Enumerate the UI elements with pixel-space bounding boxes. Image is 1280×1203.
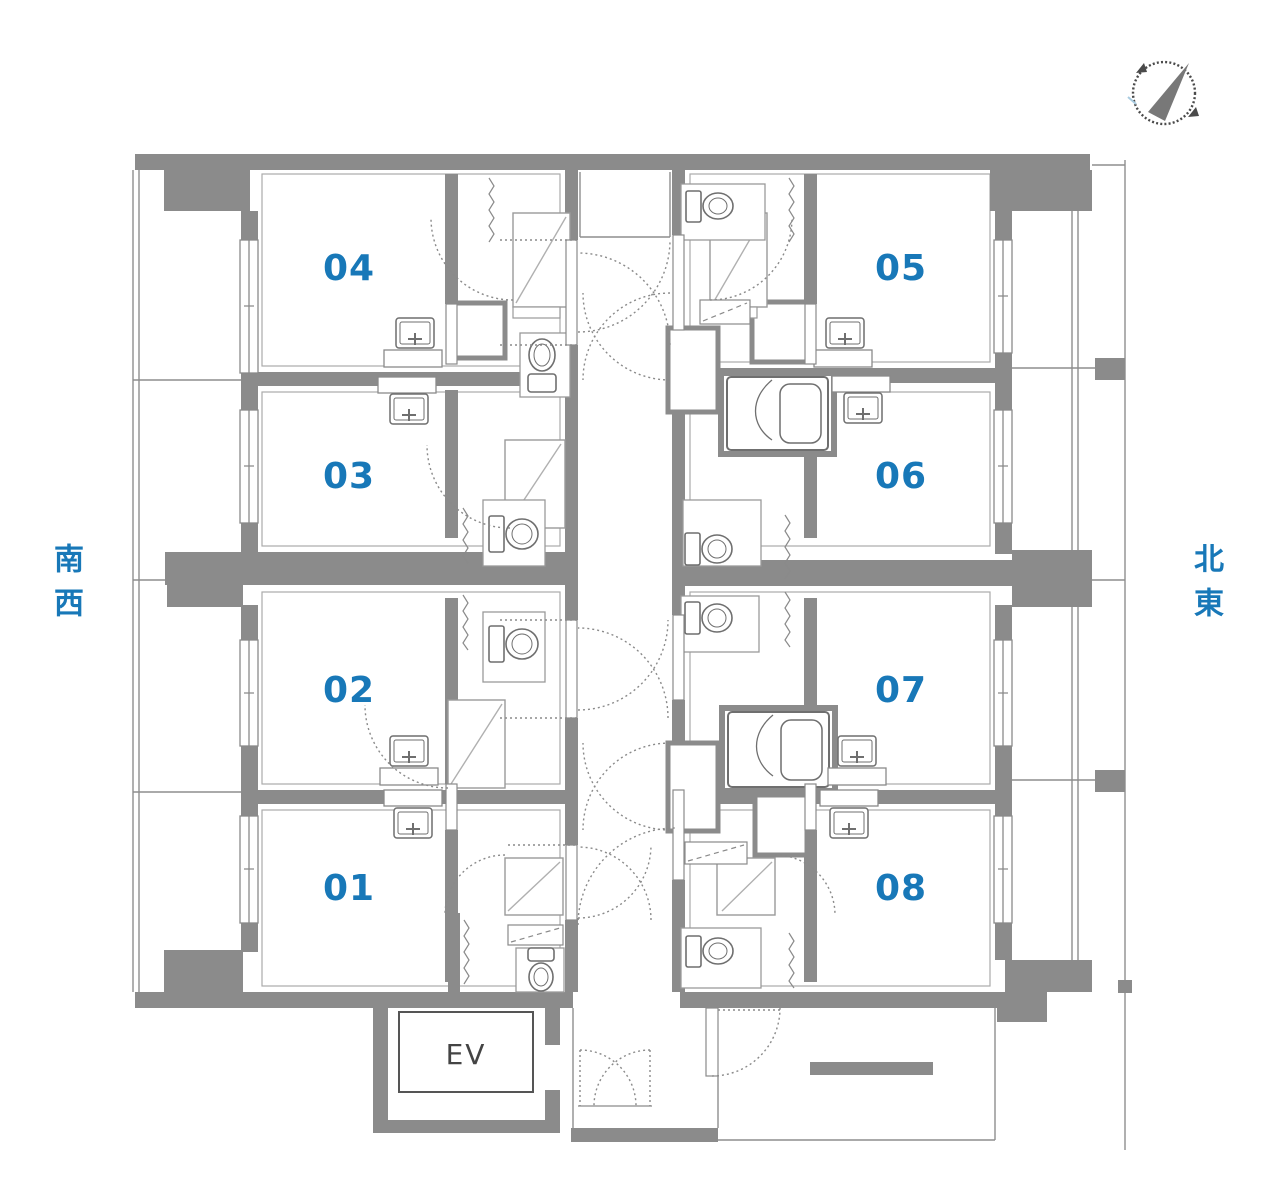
shower-room-icon — [513, 213, 570, 307]
toilet-icon — [489, 516, 538, 552]
sink-icon — [826, 318, 864, 348]
window — [994, 410, 1012, 523]
window — [994, 240, 1012, 353]
floor-plan-page: 01 02 03 04 05 06 07 08 EV 南西 北東 — [0, 0, 1280, 1203]
window — [240, 640, 258, 746]
unit-label-01: 01 — [309, 867, 389, 909]
unit-label-04: 04 — [309, 247, 389, 289]
north-arrow-compass-icon — [1128, 62, 1199, 124]
window — [240, 410, 258, 523]
window — [994, 816, 1012, 923]
floor-plan-drawing — [0, 0, 1280, 1203]
sink-icon — [390, 394, 428, 424]
sink-icon — [830, 808, 868, 838]
sink-icon — [390, 736, 428, 766]
sliding-door-icon — [685, 842, 747, 864]
shower-room-icon — [717, 858, 775, 915]
shower-room-icon — [505, 858, 563, 915]
shower-room-icon — [448, 700, 505, 788]
sink-icon — [838, 736, 876, 766]
bathtub-icon — [727, 377, 828, 450]
sliding-door-icon — [700, 300, 750, 324]
toilet-icon — [685, 602, 732, 634]
sink-icon — [844, 393, 882, 423]
toilet-icon — [686, 191, 733, 222]
sink-icon — [394, 808, 432, 838]
elevator-label: EV — [432, 1036, 500, 1072]
unit-label-08: 08 — [861, 867, 941, 909]
toilet-icon — [528, 339, 556, 392]
direction-label-southwest: 南西 — [50, 543, 80, 631]
unit-label-07: 07 — [861, 669, 941, 711]
toilet-icon — [686, 936, 733, 967]
toilet-icon — [489, 626, 538, 662]
toilet-icon — [685, 533, 732, 565]
toilet-icon — [528, 948, 554, 991]
unit-label-06: 06 — [861, 455, 941, 497]
unit-label-02: 02 — [309, 669, 389, 711]
sliding-door-icon — [508, 925, 563, 945]
bathtub-icon — [728, 712, 829, 787]
unit-label-05: 05 — [861, 247, 941, 289]
window — [240, 816, 258, 923]
direction-label-northeast: 北東 — [1190, 543, 1220, 631]
sink-icon — [396, 318, 434, 348]
window — [240, 240, 258, 373]
unit-label-03: 03 — [309, 455, 389, 497]
window — [994, 640, 1012, 746]
